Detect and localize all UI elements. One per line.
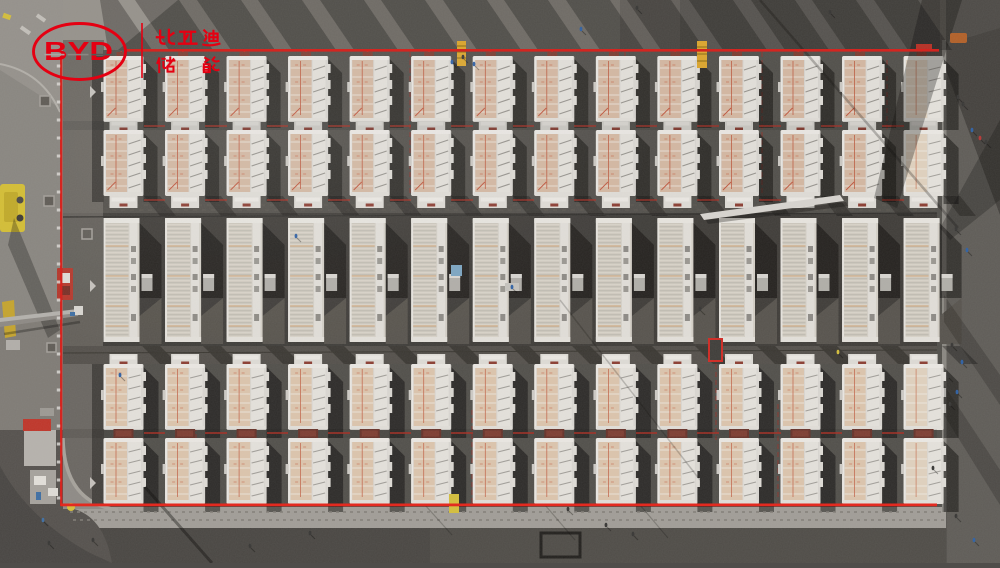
svg-text:BYD: BYD (44, 38, 113, 66)
